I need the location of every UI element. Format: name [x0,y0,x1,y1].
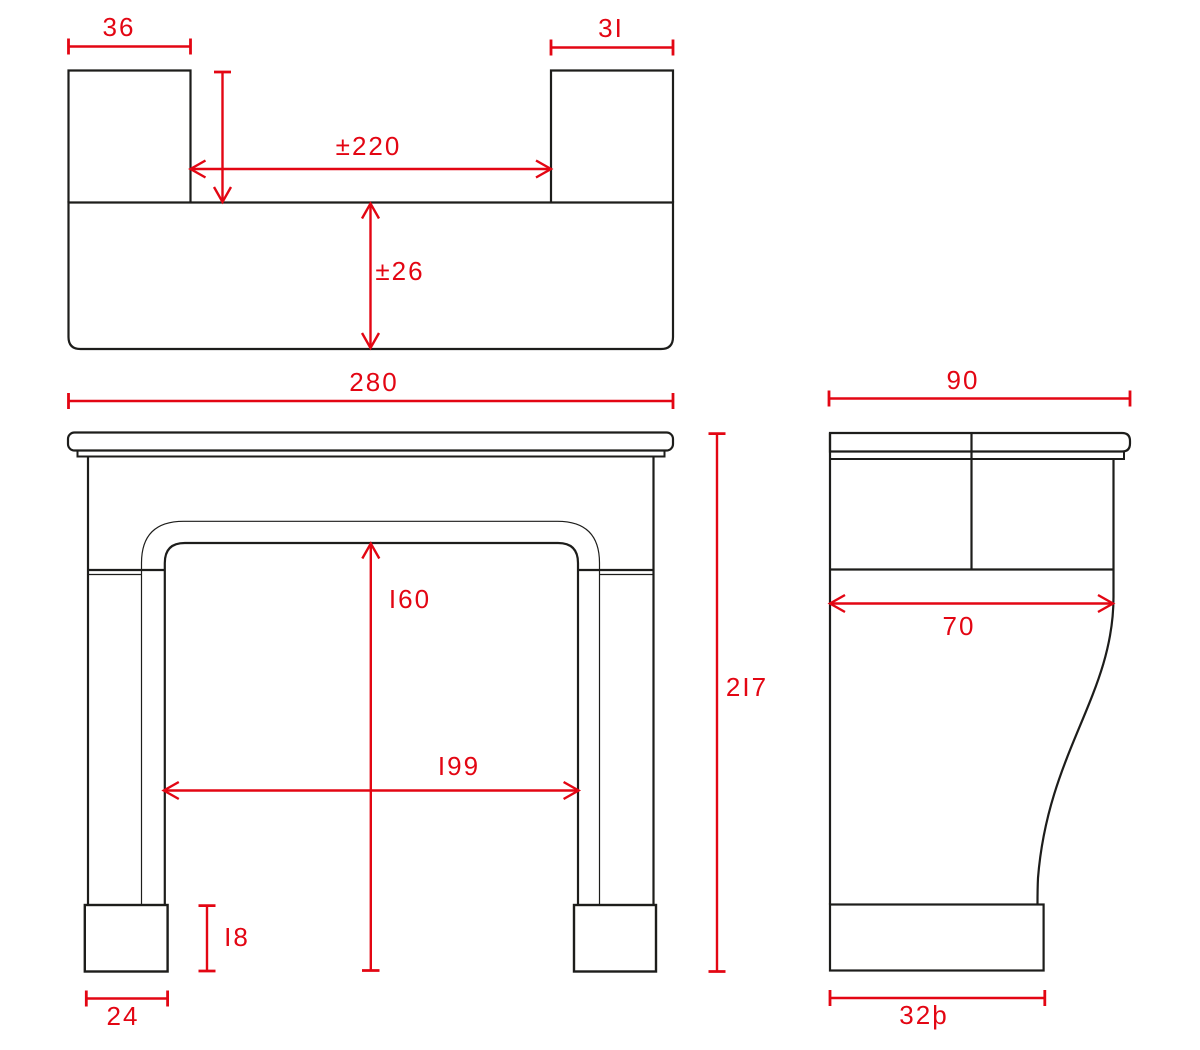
svg-text:2I7: 2I7 [726,672,768,702]
svg-text:I8: I8 [224,922,250,952]
svg-text:3I: 3I [598,13,624,43]
svg-text:I60: I60 [389,584,431,614]
svg-text:24: 24 [107,1001,140,1031]
svg-text:36: 36 [103,12,136,42]
svg-text:90: 90 [947,365,980,395]
svg-text:I99: I99 [438,751,480,781]
svg-text:32þ: 32þ [899,1000,948,1030]
svg-text:70: 70 [943,611,976,641]
svg-text:280: 280 [349,367,398,397]
svg-text:±26: ±26 [375,256,424,286]
svg-text:±220: ±220 [336,131,402,161]
